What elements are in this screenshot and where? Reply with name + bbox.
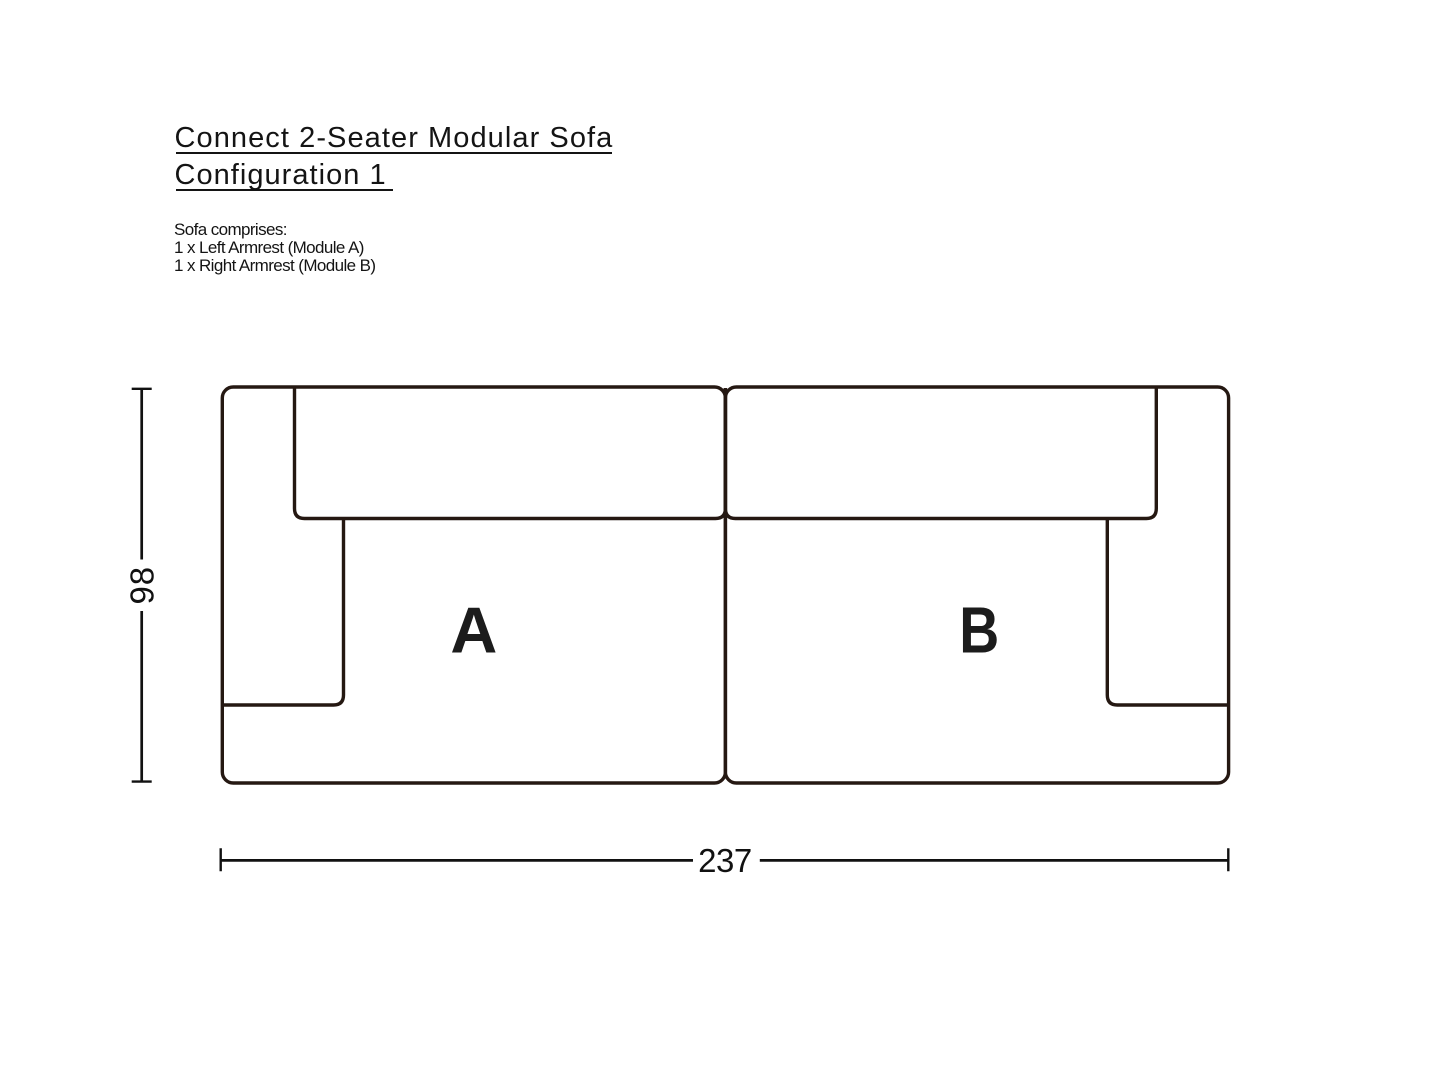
svg-text:237: 237 bbox=[698, 842, 752, 879]
svg-text:98: 98 bbox=[124, 566, 161, 604]
svg-text:A: A bbox=[450, 593, 497, 666]
svg-text:B: B bbox=[959, 593, 999, 666]
